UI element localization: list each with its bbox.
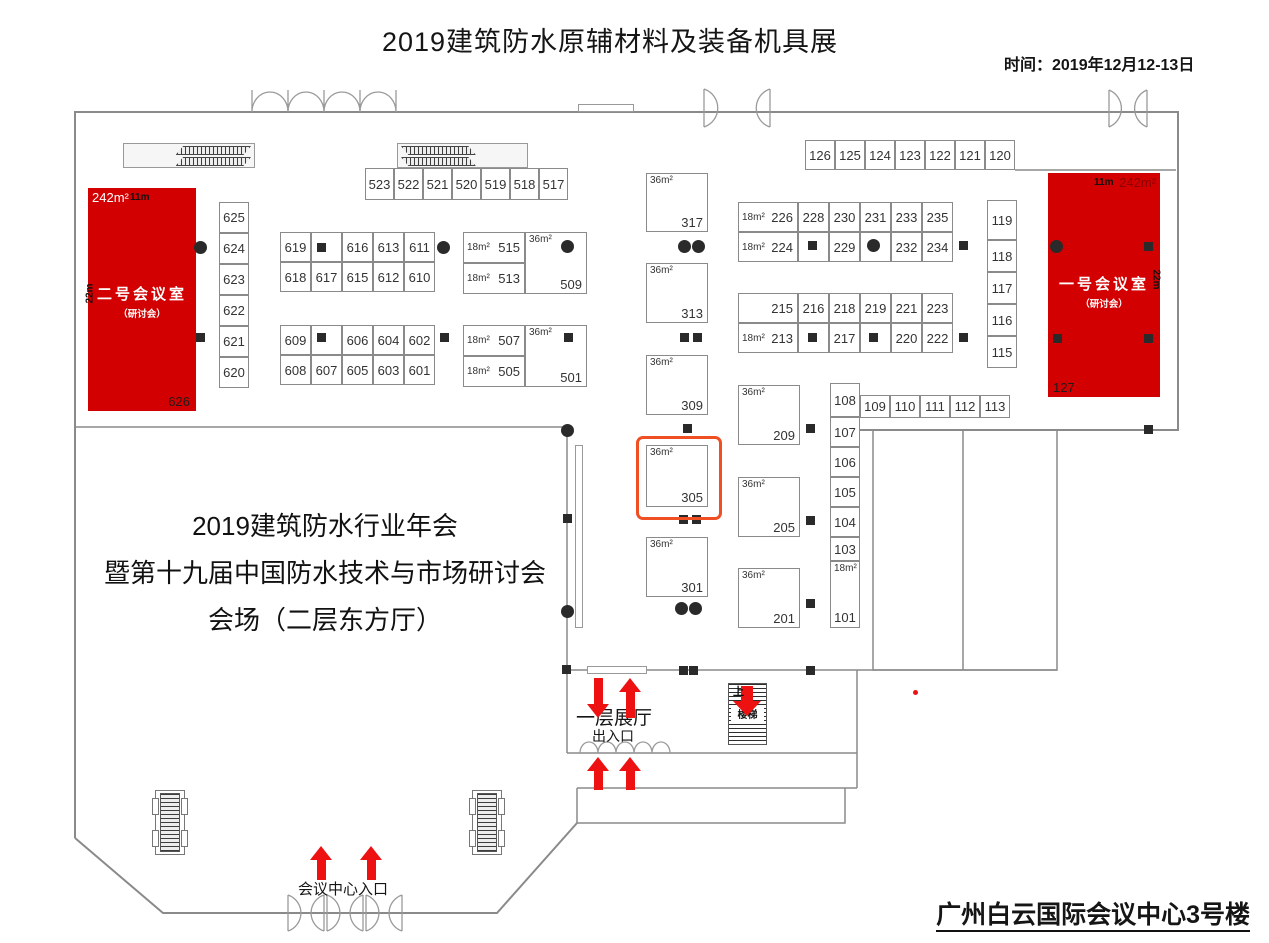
booth-number: 120 (989, 148, 1011, 163)
booth-116: 116 (987, 304, 1017, 336)
window-bar-top (578, 104, 634, 112)
pillar-circle (678, 240, 691, 253)
annual-meeting-line2: 暨第十九届中国防水技术与市场研讨会 (70, 550, 580, 597)
booth-number: 209 (773, 428, 795, 443)
pillar-circle (194, 241, 207, 254)
booth-205: 36m²205 (738, 477, 800, 537)
booth-121: 121 (955, 140, 985, 170)
booth-number: 215 (771, 301, 793, 316)
booth-313: 36m²313 (646, 263, 708, 323)
window-bar-bottom (587, 666, 647, 674)
booth-625: 625 (219, 202, 249, 233)
booth-area-label: 36m² (650, 357, 673, 368)
booth-number: 228 (803, 210, 825, 225)
pillar-square (959, 241, 968, 250)
booth-610: 610 (404, 262, 435, 292)
booth-118: 118 (987, 240, 1017, 272)
booth-501: 36m²501 (525, 325, 587, 387)
booth-area-label: 36m² (529, 234, 552, 245)
booth-215: 215 (738, 293, 798, 323)
booth-area-label: 36m² (650, 265, 673, 276)
booth-number: 523 (369, 177, 391, 192)
booth-317: 36m²317 (646, 173, 708, 232)
booth-empty-cell (311, 232, 342, 262)
room-subtitle: （研讨会） (1048, 296, 1160, 310)
room-name: 二号会议室 (88, 283, 196, 304)
booth-number: 221 (896, 301, 918, 316)
pillar-square (196, 333, 205, 342)
booth-518: 518 (510, 168, 539, 200)
pillar-square (317, 243, 326, 252)
booth-301: 36m²301 (646, 537, 708, 597)
booth-126: 126 (805, 140, 835, 170)
window-bar-side (575, 445, 583, 628)
booth-number: 108 (834, 393, 856, 408)
booth-127: 127 (1053, 380, 1075, 395)
booth-area-label: 18m² (742, 333, 765, 344)
room-width-label: 11m (130, 192, 149, 203)
booth-219: 219 (860, 293, 891, 323)
booth-number: 609 (285, 333, 307, 348)
booth-616: 616 (342, 232, 373, 262)
booth-623: 623 (219, 264, 249, 295)
booth-number: 229 (834, 240, 856, 255)
booth-area-label: 18m² (742, 242, 765, 253)
booth-area-label: 36m² (650, 539, 673, 550)
booth-number: 521 (427, 177, 449, 192)
pillar-circle (561, 424, 574, 437)
booth-number: 122 (929, 148, 951, 163)
up-arrow (360, 846, 382, 880)
booth-area-label: 36m² (650, 175, 673, 186)
booth-309: 36m²309 (646, 355, 708, 415)
booth-number: 213 (771, 331, 793, 346)
booth-number: 517 (543, 177, 565, 192)
booth-609: 609 (280, 325, 311, 355)
pillar-circle (561, 605, 574, 618)
booth-number: 601 (409, 363, 431, 378)
booth-number: 115 (992, 345, 1013, 360)
booth-613: 613 (373, 232, 404, 262)
booth-112: 112 (950, 395, 980, 418)
pillar-square (680, 333, 689, 342)
pillar-square (1144, 242, 1153, 251)
booth-area-label: 36m² (742, 479, 765, 490)
entrance-exit-label: 出入口 (592, 726, 634, 746)
booth-number: 623 (223, 272, 245, 287)
booth-603: 603 (373, 355, 404, 385)
booth-number: 313 (681, 306, 703, 321)
booth-234: 234 (922, 232, 953, 262)
booth-108: 108 (830, 383, 860, 417)
booth-number: 123 (899, 148, 921, 163)
booth-230: 230 (829, 202, 860, 232)
booth-620: 620 (219, 357, 249, 388)
booth-area-label: 18m² (467, 366, 490, 377)
booth-number: 223 (927, 301, 949, 316)
booth-number: 104 (834, 515, 856, 530)
booth-602: 602 (404, 325, 435, 355)
booth-223: 223 (922, 293, 953, 323)
pillar-circle (561, 240, 574, 253)
annual-meeting-line1: 2019建筑防水行业年会 (70, 503, 580, 550)
highlighted-booth-305-outline (636, 436, 722, 520)
booth-number: 107 (834, 425, 856, 440)
booth-119: 119 (987, 200, 1017, 240)
booth-number: 233 (896, 210, 918, 225)
booth-number: 619 (285, 240, 307, 255)
booth-101: 18m²101 (830, 561, 860, 628)
booth-number: 604 (378, 333, 400, 348)
room-depth-label: 22m (1150, 269, 1161, 289)
booth-619: 619 (280, 232, 311, 262)
booth-number: 317 (681, 215, 703, 230)
booth-number: 501 (560, 370, 582, 385)
booth-201: 36m²201 (738, 568, 800, 628)
booth-number: 520 (456, 177, 478, 192)
booth-number: 231 (865, 210, 887, 225)
pillar-square (679, 666, 688, 675)
venue-name-text: 广州白云国际会议中心3号楼 (936, 901, 1250, 932)
booth-number: 519 (485, 177, 507, 192)
booth-106: 106 (830, 447, 860, 477)
pillar-square (693, 333, 702, 342)
booth-area-label: 18m² (834, 563, 857, 574)
down-arrow (587, 678, 609, 718)
escalator-bottom-right (472, 790, 502, 855)
up-arrow (619, 757, 641, 790)
booth-209: 36m²209 (738, 385, 800, 445)
page-title: 2019建筑防水原辅材料及装备机具展 (330, 20, 890, 59)
booth-109: 109 (860, 395, 890, 418)
pillar-square (564, 333, 573, 342)
booth-number: 216 (803, 301, 825, 316)
booth-number: 625 (223, 210, 245, 225)
conference-room-1: 11m 242m² 一号会议室 （研讨会） 22m 127 (1048, 173, 1160, 397)
booth-number: 117 (992, 281, 1013, 296)
service-room (873, 430, 1057, 670)
booth-612: 612 (373, 262, 404, 292)
room-name: 一号会议室 (1048, 273, 1160, 294)
booth-103: 103 (830, 537, 860, 561)
booth-number: 613 (378, 240, 400, 255)
booth-235: 235 (922, 202, 953, 232)
floorplan-walls (0, 0, 1269, 943)
pillar-circle (689, 602, 702, 615)
booth-number: 124 (869, 148, 891, 163)
booth-number: 509 (560, 277, 582, 292)
pillar-square (808, 333, 817, 342)
booth-number: 112 (955, 399, 976, 414)
pillar-square (959, 333, 968, 342)
pillar-square (440, 333, 449, 342)
booth-221: 221 (891, 293, 922, 323)
booth-number: 234 (927, 240, 949, 255)
booth-number: 611 (409, 240, 430, 255)
booth-number: 111 (925, 399, 945, 414)
booth-number: 515 (498, 240, 520, 255)
annual-meeting-line3: 会场（二层东方厅） (70, 597, 580, 644)
booth-number: 119 (992, 213, 1013, 228)
booth-226: 18m²226 (738, 202, 798, 232)
booth-120: 120 (985, 140, 1015, 170)
booth-125: 125 (835, 140, 865, 170)
booth-number: 507 (498, 333, 520, 348)
booth-number: 617 (316, 270, 338, 285)
booth-617: 617 (311, 262, 342, 292)
booth-number: 513 (498, 271, 520, 286)
pillar-square (808, 241, 817, 250)
booth-number: 230 (834, 210, 856, 225)
booth-605: 605 (342, 355, 373, 385)
pillar-circle (867, 239, 880, 252)
booth-520: 520 (452, 168, 481, 200)
booth-number: 109 (864, 399, 886, 414)
booth-area-label: 36m² (742, 570, 765, 581)
up-arrow (619, 678, 641, 718)
booth-122: 122 (925, 140, 955, 170)
booth-number: 222 (927, 331, 949, 346)
booth-number: 615 (347, 270, 369, 285)
booth-622: 622 (219, 295, 249, 326)
booth-number: 219 (865, 301, 887, 316)
event-time: 时间：2019年12月12-13日 (1004, 51, 1194, 75)
booth-222: 222 (922, 323, 953, 353)
booth-area-label: 18m² (467, 273, 490, 284)
pillar-square (1053, 334, 1062, 343)
booth-220: 220 (891, 323, 922, 353)
booth-519: 519 (481, 168, 510, 200)
booth-507: 18m²507 (463, 325, 525, 356)
booth-615: 615 (342, 262, 373, 292)
booth-517: 517 (539, 168, 568, 200)
booth-505: 18m²505 (463, 356, 525, 387)
pillar-square (563, 514, 572, 523)
booth-empty-cell (311, 325, 342, 355)
booth-606: 606 (342, 325, 373, 355)
room-width-label: 11m (1094, 177, 1113, 188)
booth-number: 301 (681, 580, 703, 595)
room-subtitle: （研讨会） (88, 306, 196, 320)
up-arrow (587, 757, 609, 790)
pillar-square (689, 666, 698, 675)
venue-name: 广州白云国际会议中心3号楼 (900, 895, 1250, 931)
red-dot-marker (913, 690, 918, 695)
entry-platform (577, 788, 845, 823)
pillar-square (562, 665, 571, 674)
booth-107: 107 (830, 417, 860, 447)
booth-number: 624 (223, 241, 245, 256)
booth-number: 505 (498, 364, 520, 379)
revolving-door-top-center (704, 89, 770, 127)
booth-number: 518 (514, 177, 536, 192)
booth-number: 106 (834, 455, 856, 470)
booth-number: 205 (773, 520, 795, 535)
booth-number: 118 (992, 249, 1013, 264)
booth-124: 124 (865, 140, 895, 170)
floorplan-page: 2019建筑防水原辅材料及装备机具展 时间：2019年12月12-13日 242… (0, 0, 1269, 943)
pillar-circle (437, 241, 450, 254)
booth-515: 18m²515 (463, 232, 525, 263)
pillar-circle (1050, 240, 1063, 253)
booth-608: 608 (280, 355, 311, 385)
pillar-circle (692, 240, 705, 253)
up-arrow (310, 846, 332, 880)
booth-number: 602 (409, 333, 431, 348)
escalator-top-left (123, 143, 255, 168)
booth-123: 123 (895, 140, 925, 170)
booth-522: 522 (394, 168, 423, 200)
room-area-label: 242m² (1119, 175, 1156, 190)
booth-number: 618 (285, 270, 307, 285)
booth-number: 621 (223, 334, 245, 349)
booth-number: 309 (681, 398, 703, 413)
booth-number: 220 (896, 331, 918, 346)
pillar-square (1144, 334, 1153, 343)
pillar-square (806, 599, 815, 608)
booth-number: 224 (771, 240, 793, 255)
booth-604: 604 (373, 325, 404, 355)
booth-117: 117 (987, 272, 1017, 304)
booth-216: 216 (798, 293, 829, 323)
booth-number: 110 (895, 399, 916, 414)
pillar-circle (675, 602, 688, 615)
booth-number: 608 (285, 363, 307, 378)
escalator-bottom-left (155, 790, 185, 855)
booth-area-label: 18m² (742, 212, 765, 223)
booth-number: 606 (347, 333, 369, 348)
booth-number: 622 (223, 303, 245, 318)
booth-number: 105 (834, 485, 856, 500)
booth-number: 217 (834, 331, 856, 346)
booth-number: 607 (316, 363, 338, 378)
booth-228: 228 (798, 202, 829, 232)
booth-521: 521 (423, 168, 452, 200)
booth-area-label: 36m² (742, 387, 765, 398)
booth-229: 229 (829, 232, 860, 262)
booth-number: 201 (773, 611, 795, 626)
booth-number: 103 (834, 542, 856, 557)
booth-111: 111 (920, 395, 950, 418)
booth-105: 105 (830, 477, 860, 507)
booth-area-label: 18m² (467, 242, 490, 253)
booth-number: 218 (834, 301, 856, 316)
booth-number: 101 (831, 610, 859, 625)
booth-601: 601 (404, 355, 435, 385)
booth-224: 18m²224 (738, 232, 798, 262)
booth-611: 611 (404, 232, 435, 262)
booth-number: 522 (398, 177, 420, 192)
booth-217: 217 (829, 323, 860, 353)
booth-523: 523 (365, 168, 394, 200)
booth-number: 113 (985, 399, 1006, 414)
booth-number: 620 (223, 365, 245, 380)
booth-115: 115 (987, 336, 1017, 368)
booth-number: 125 (839, 148, 861, 163)
conference-room-2: 242m² 11m 22m 二号会议室 （研讨会） 626 (88, 188, 196, 411)
booth-number: 232 (896, 240, 918, 255)
booth-number: 605 (347, 363, 369, 378)
pillar-square (317, 333, 326, 342)
revolving-door-top-right (1109, 90, 1147, 127)
booth-number: 616 (347, 240, 369, 255)
top-door-arcs (252, 90, 396, 112)
booth-number: 612 (378, 270, 400, 285)
booth-607: 607 (311, 355, 342, 385)
booth-number: 121 (959, 148, 981, 163)
booth-626: 626 (168, 394, 190, 409)
booth-509: 36m²509 (525, 232, 587, 294)
booth-513: 18m²513 (463, 263, 525, 294)
pillar-square (1144, 425, 1153, 434)
booth-213: 18m²213 (738, 323, 798, 353)
booth-231: 231 (860, 202, 891, 232)
booth-618: 618 (280, 262, 311, 292)
pillar-square (683, 424, 692, 433)
booth-area-label: 18m² (467, 335, 490, 346)
booth-number: 126 (809, 148, 831, 163)
booth-area-label: 36m² (529, 327, 552, 338)
pillar-square (869, 333, 878, 342)
booth-104: 104 (830, 507, 860, 537)
booth-232: 232 (891, 232, 922, 262)
booth-number: 235 (927, 210, 949, 225)
center-entrance-label: 会议中心入口 (298, 878, 388, 899)
booth-621: 621 (219, 326, 249, 357)
room-area-label: 242m² (92, 190, 129, 205)
booth-number: 610 (409, 270, 431, 285)
stairs-up-label: 上 (733, 683, 744, 699)
pillar-square (806, 666, 815, 675)
pillar-square (806, 424, 815, 433)
pillar-square (806, 516, 815, 525)
booth-number: 116 (992, 313, 1013, 328)
booth-233: 233 (891, 202, 922, 232)
booth-113: 113 (980, 395, 1010, 418)
escalator-top-right (397, 143, 528, 168)
annual-meeting-text: 2019建筑防水行业年会 暨第十九届中国防水技术与市场研讨会 会场（二层东方厅） (70, 503, 580, 644)
booth-110: 110 (890, 395, 920, 418)
booth-number: 603 (378, 363, 400, 378)
booth-218: 218 (829, 293, 860, 323)
booth-number: 226 (771, 210, 793, 225)
booth-624: 624 (219, 233, 249, 264)
